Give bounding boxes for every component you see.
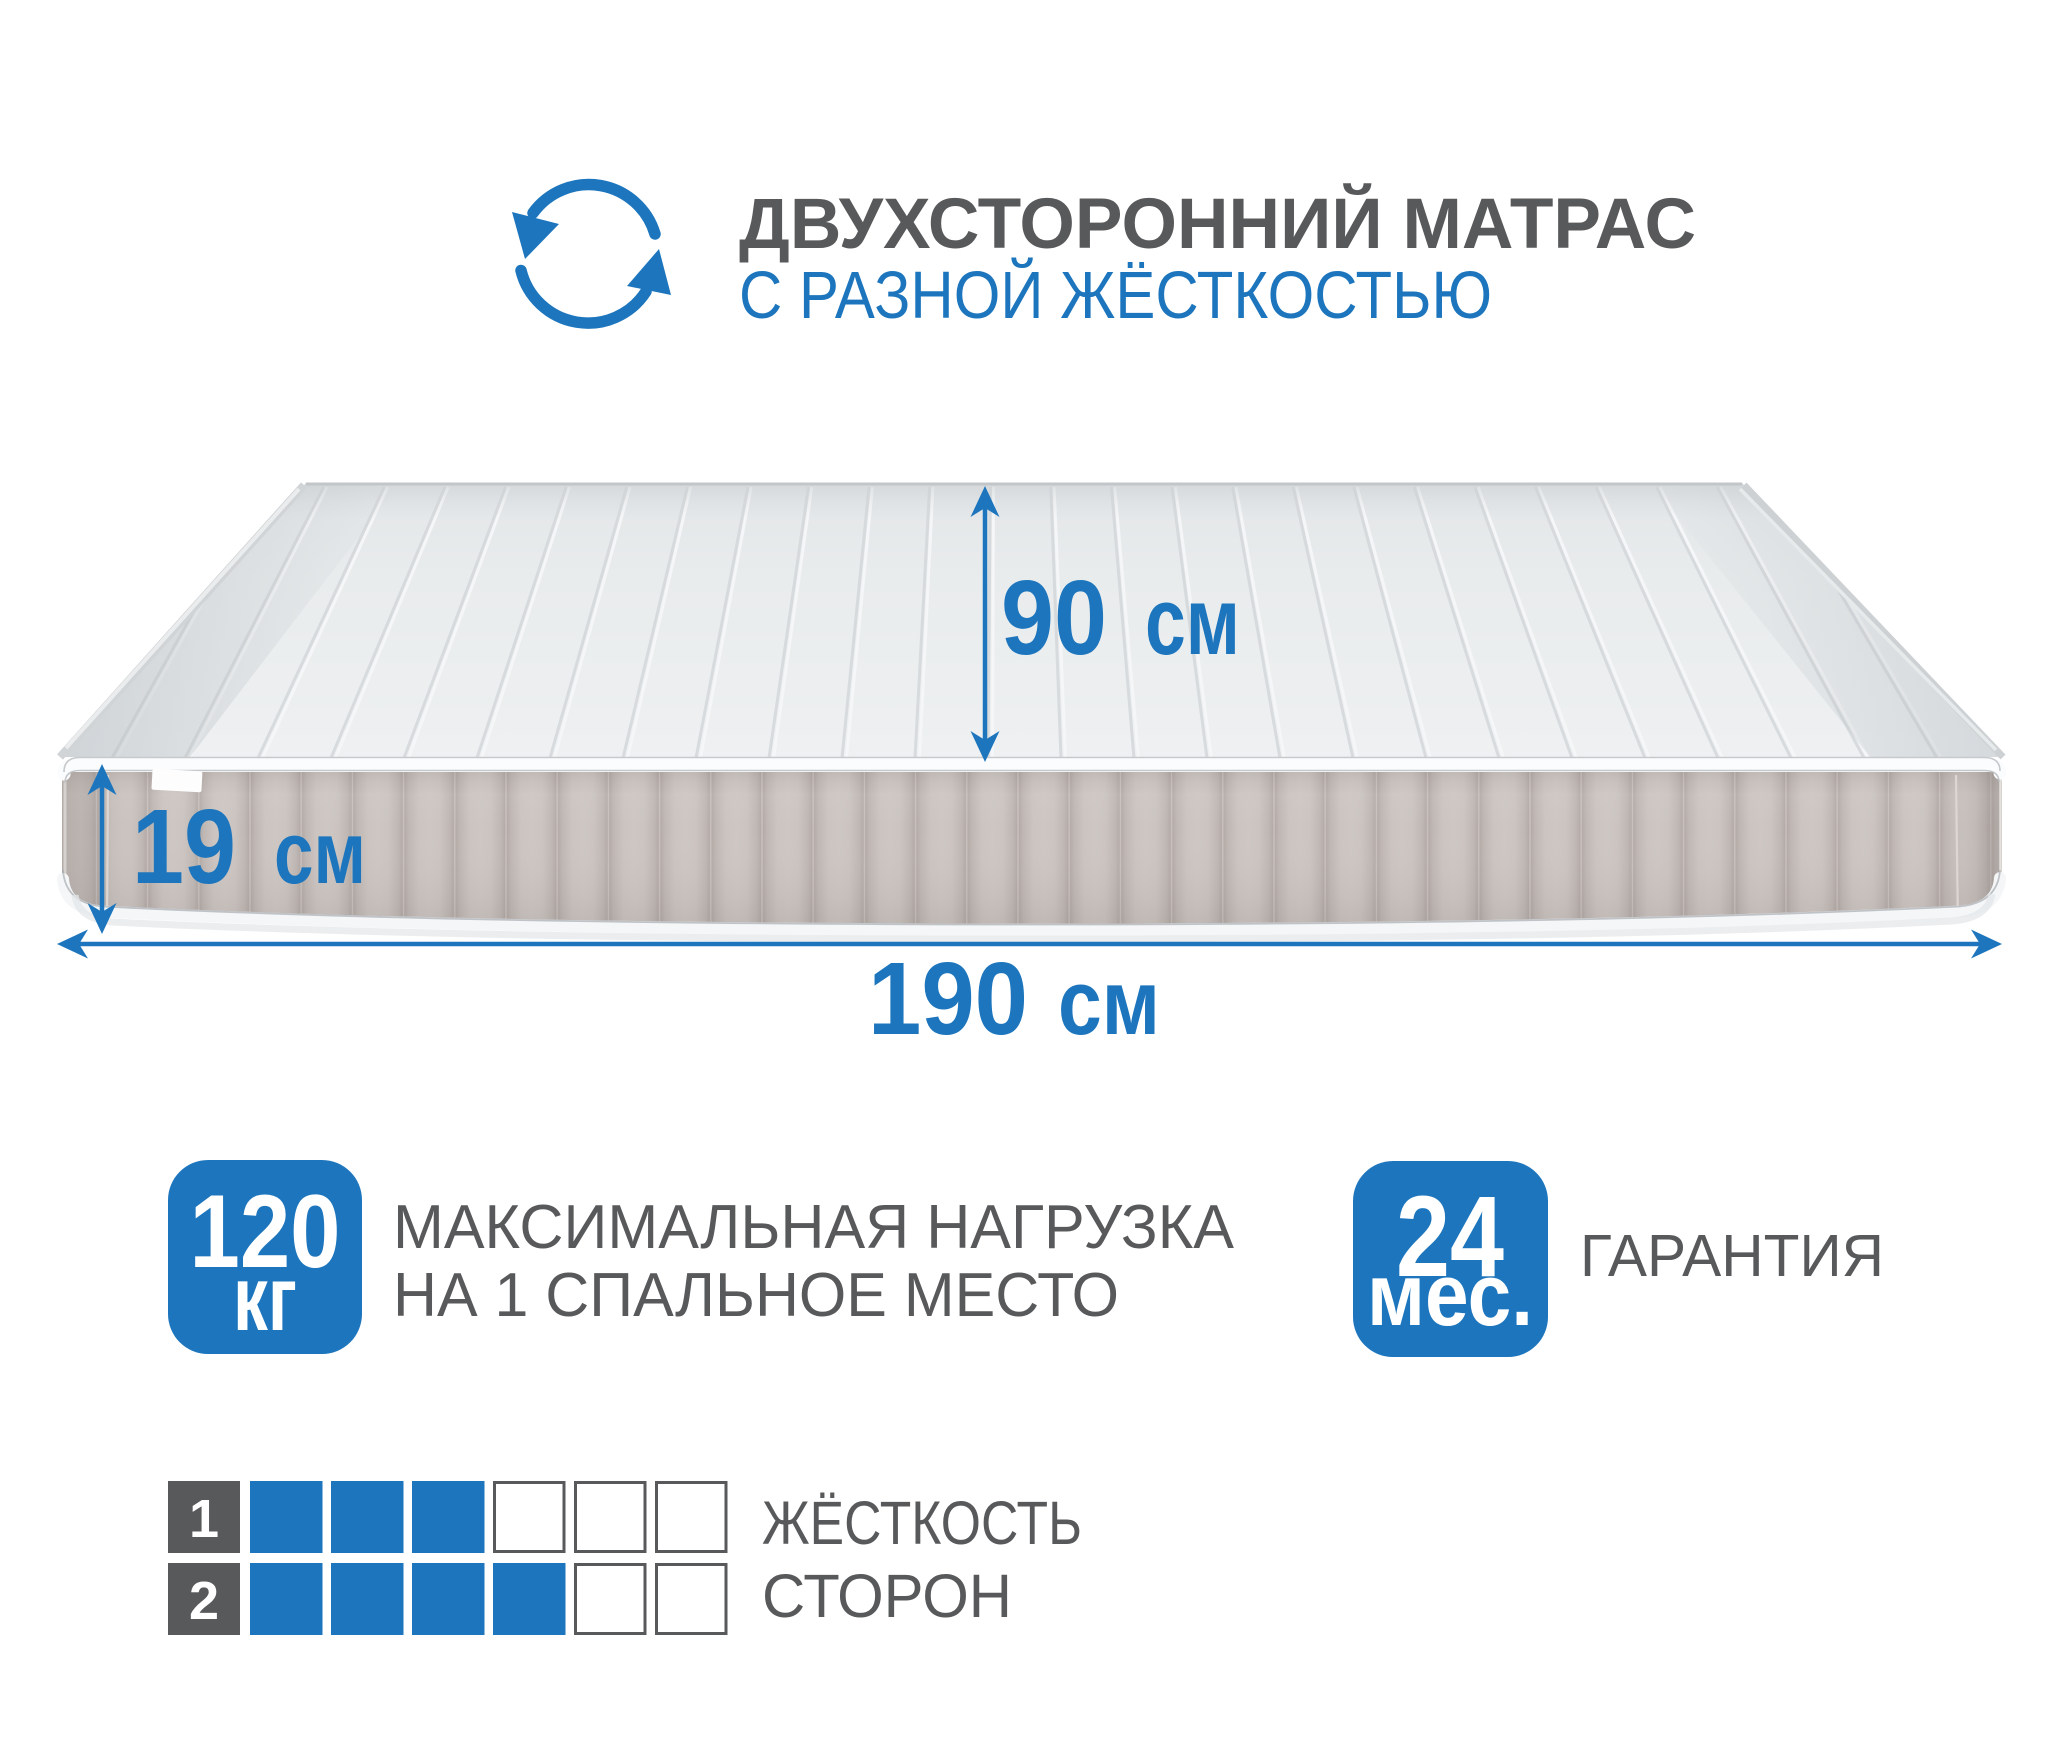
svg-text:ЖЁСТКОСТЬ: ЖЁСТКОСТЬ xyxy=(762,1489,1082,1557)
svg-text:СТОРОН: СТОРОН xyxy=(762,1562,1012,1630)
svg-text:ГАРАНТИЯ: ГАРАНТИЯ xyxy=(1580,1223,1884,1289)
svg-text:19: 19 xyxy=(132,788,236,906)
svg-text:1: 1 xyxy=(189,1489,219,1549)
svg-text:190: 190 xyxy=(868,941,1028,1056)
svg-text:2: 2 xyxy=(189,1571,219,1631)
svg-text:см: см xyxy=(1145,568,1240,675)
svg-text:кг: кг xyxy=(233,1248,297,1350)
svg-text:90: 90 xyxy=(1001,559,1107,677)
svg-text:НА 1 СПАЛЬНОЕ МЕСТО: НА 1 СПАЛЬНОЕ МЕСТО xyxy=(393,1261,1119,1330)
svg-text:МАКСИМАЛЬНАЯ НАГРУЗКА: МАКСИМАЛЬНАЯ НАГРУЗКА xyxy=(393,1193,1235,1262)
svg-text:мес.: мес. xyxy=(1367,1245,1533,1344)
svg-text:ДВУХСТОРОННИЙ МАТРАС: ДВУХСТОРОННИЙ МАТРАС xyxy=(739,184,1696,264)
svg-text:С РАЗНОЙ ЖЁСТКОСТЬЮ: С РАЗНОЙ ЖЁСТКОСТЬЮ xyxy=(739,257,1492,333)
svg-text:см: см xyxy=(1058,952,1160,1054)
svg-text:см: см xyxy=(274,803,366,902)
